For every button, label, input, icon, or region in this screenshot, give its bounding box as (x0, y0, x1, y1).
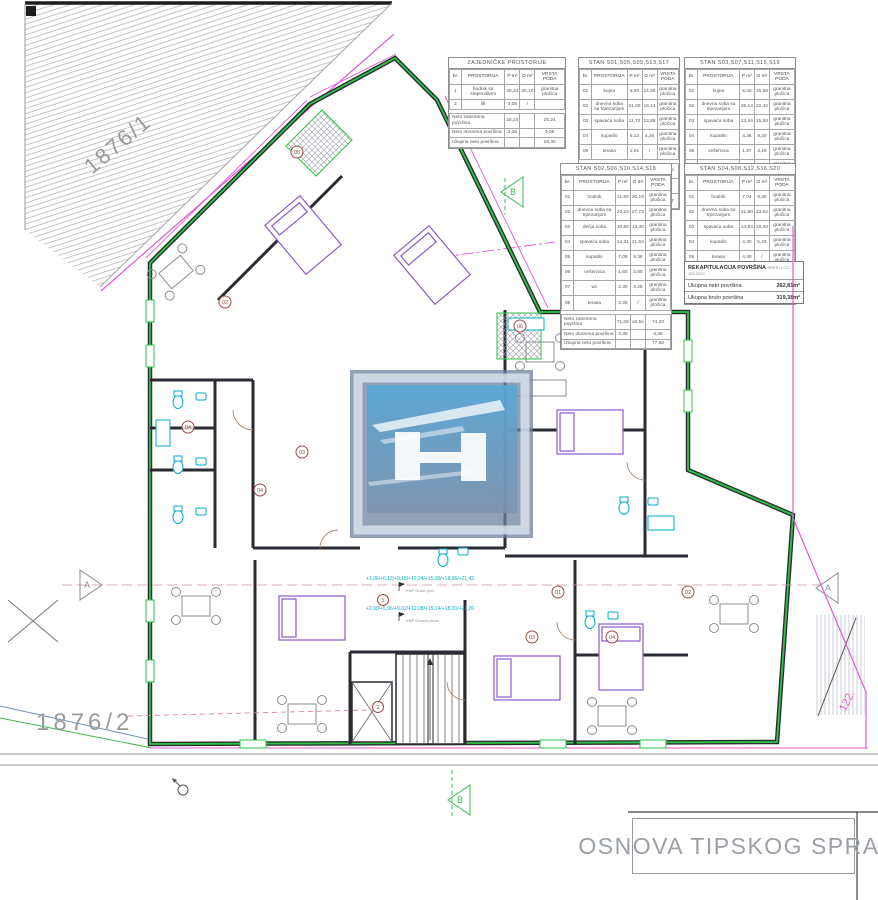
room-badge: 1 (378, 595, 389, 606)
room-badge: 02 (219, 296, 231, 308)
toilet (619, 497, 629, 515)
svg-text:04: 04 (185, 425, 191, 431)
corner-block (26, 6, 36, 16)
svg-text:06: 06 (517, 324, 523, 330)
survey-cross (8, 600, 58, 642)
table-title: ZAJEDNIČKE PROSTORIJE (449, 58, 565, 69)
svg-text:01: 01 (555, 590, 561, 596)
drawing-title: OSNOVA TIPSKOG SPRATA (578, 833, 878, 860)
room-badge: 01 (552, 586, 564, 598)
toilet (438, 549, 448, 567)
svg-text:02: 02 (222, 300, 228, 306)
rekap-label: Ukupna neto površina (688, 283, 742, 289)
level-line-2-sub: KNP Gotova ploča (406, 618, 440, 623)
svg-text:2: 2 (376, 705, 379, 711)
drawing-title-box: OSNOVA TIPSKOG SPRATA (632, 818, 855, 874)
svg-text:1: 1 (381, 598, 384, 604)
section-letter-a-right: A (825, 583, 831, 593)
sink (648, 498, 658, 505)
table-zajednicke-prostorije: ZAJEDNIČKE PROSTORIJE br.PROSTORIJAP m²O… (448, 57, 566, 149)
room-badge: 04 (606, 631, 618, 643)
room-badge: 2 (373, 702, 384, 713)
road-lines (0, 748, 878, 765)
table-title: STAN S03,S07,S11,S15,S19 (685, 58, 795, 69)
sink (608, 612, 618, 619)
bathtub (156, 420, 170, 446)
room-badge: 03 (296, 446, 308, 458)
svg-text:03: 03 (529, 635, 535, 641)
table-set (145, 242, 206, 302)
table-title: STAN S02,S06,S10,S14,S18 (561, 164, 671, 175)
rekap-row-neto: Ukupna neto površina 262,81m² (685, 280, 803, 292)
level-line-1: +3,06/+6,12/+9,18/+12,24/+15,30/+18,36/+… (366, 576, 474, 582)
bed (394, 226, 470, 305)
level-flag-icon (399, 612, 405, 617)
bed (265, 196, 341, 275)
elevator-shaft (352, 682, 392, 742)
rekapitulacija-box: REKAPITULACIJA POVRŠINA SRPS U.C2. 100:2… (684, 261, 804, 304)
shower (648, 516, 674, 530)
svg-text:04: 04 (609, 635, 615, 641)
table-title: STAN S04,S08,S12,S16,S20 (685, 164, 795, 175)
room-badge: 02 (682, 586, 694, 598)
toilet (585, 611, 595, 629)
section-letter-b-bottom: B (457, 795, 463, 805)
svg-text:05: 05 (294, 150, 300, 156)
svg-text:03: 03 (299, 450, 305, 456)
table-set (172, 588, 221, 625)
sink (458, 548, 468, 555)
table-title: STAN S01,S05,S09,S13,S17 (579, 58, 679, 69)
survey-point-icon (172, 778, 188, 795)
parcel-label-1876-2: 1876/2 (36, 709, 133, 736)
table-set (278, 696, 327, 733)
bed (279, 596, 345, 640)
sofa (512, 380, 566, 396)
parcel-leader-line (128, 710, 368, 716)
rekap-value: 319,38m² (776, 295, 800, 301)
room-badge: 03 (526, 631, 538, 643)
rekap-value: 262,81m² (776, 283, 800, 289)
table-grid: br.PROSTORIJAP m²O m²VRSTA PODA1hodnik s… (449, 69, 565, 148)
sink (196, 458, 206, 465)
level-line-1-sub: KNP Gotov pod (406, 588, 434, 593)
sink (196, 508, 206, 515)
toilet (173, 391, 183, 409)
toilet (173, 506, 183, 524)
table-set (588, 698, 637, 735)
toilet (173, 456, 183, 474)
svg-text:02: 02 (685, 590, 691, 596)
bed (557, 410, 623, 454)
floor-plan-sheet: 1876/1 (0, 0, 878, 900)
room-badge: 06 (514, 320, 526, 332)
svg-text:04: 04 (257, 488, 263, 494)
level-line-2: +2,90/+5,96/+9,02/+12,08/+15,14/+18,20/+… (366, 606, 474, 612)
stairs (396, 654, 464, 744)
bed (599, 624, 643, 690)
section-letter-b-top: B (510, 187, 516, 197)
room-badge: 05 (291, 146, 303, 158)
table-stan-s02: STAN S02,S06,S10,S14,S18 br.PROSTORIJAP … (560, 163, 672, 350)
rekapitulacija-title: REKAPITULACIJA POVRŠINA SRPS U.C2. 100:2… (685, 262, 803, 280)
bed (494, 656, 560, 700)
room-badge: 04 (182, 421, 194, 433)
room-badge: 04 (254, 484, 266, 496)
level-flag-icon (399, 582, 405, 587)
section-letter-a-left: A (84, 580, 90, 590)
rekap-label: Ukupna bruto površina (688, 295, 743, 301)
sink (196, 393, 206, 400)
rekap-row-bruto: Ukupna bruto površina 319,38m² (685, 292, 803, 303)
table-set (710, 596, 759, 633)
table-grid: br.PROSTORIJAP m²O m²VRSTA PODA01hodnik1… (561, 175, 671, 349)
